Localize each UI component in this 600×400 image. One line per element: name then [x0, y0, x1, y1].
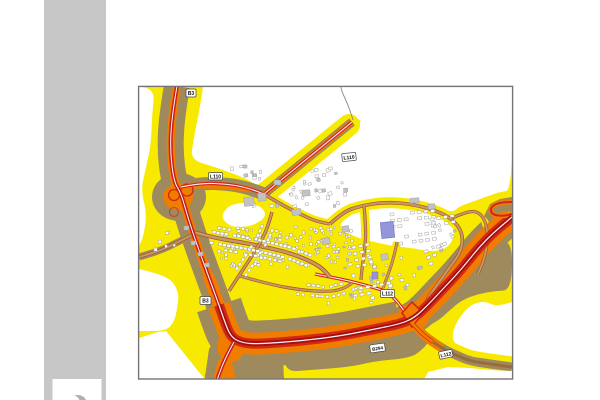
svg-text:B3: B3 [188, 91, 195, 97]
svg-text:L112: L112 [382, 292, 393, 298]
svg-text:L110: L110 [210, 174, 221, 180]
svg-text:B3: B3 [202, 299, 209, 305]
svg-text:L110: L110 [343, 155, 355, 162]
